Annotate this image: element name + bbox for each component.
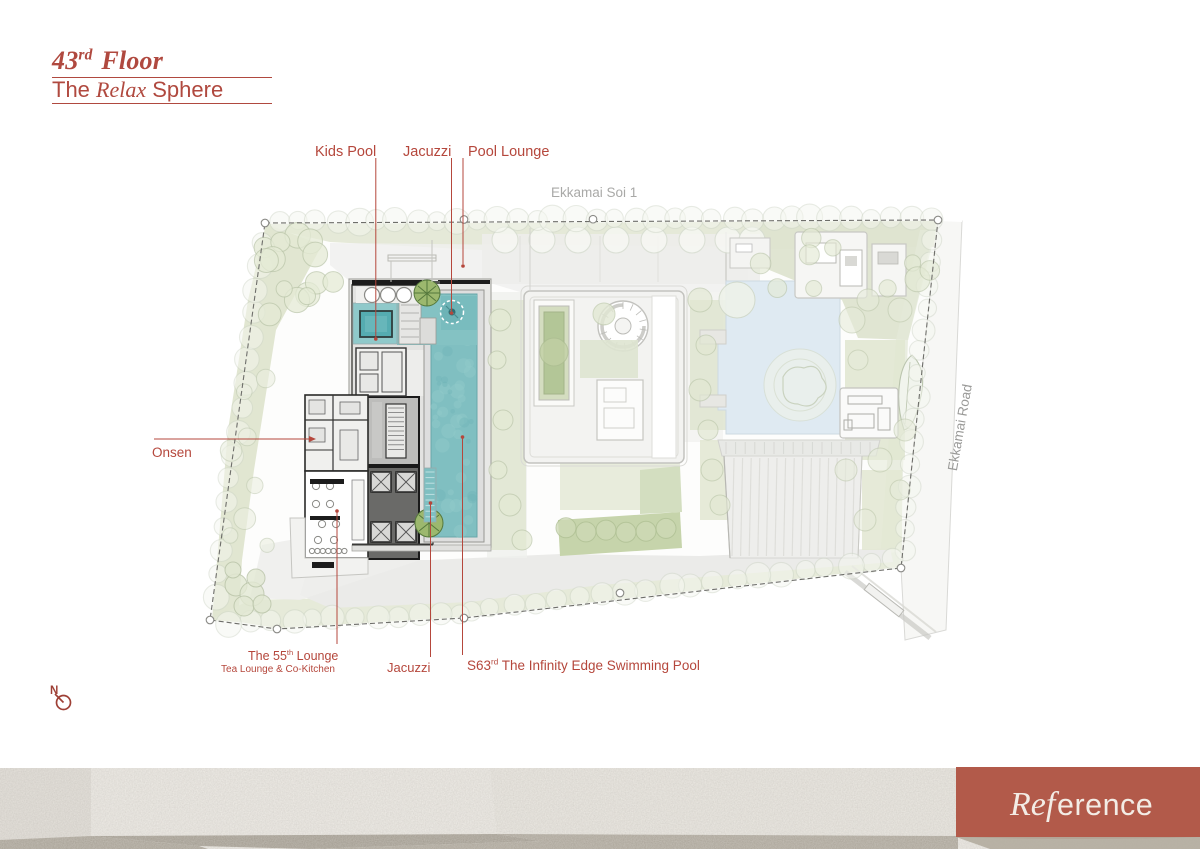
svg-text:Ref: Ref <box>1009 786 1060 823</box>
svg-text:erence: erence <box>1057 788 1153 822</box>
